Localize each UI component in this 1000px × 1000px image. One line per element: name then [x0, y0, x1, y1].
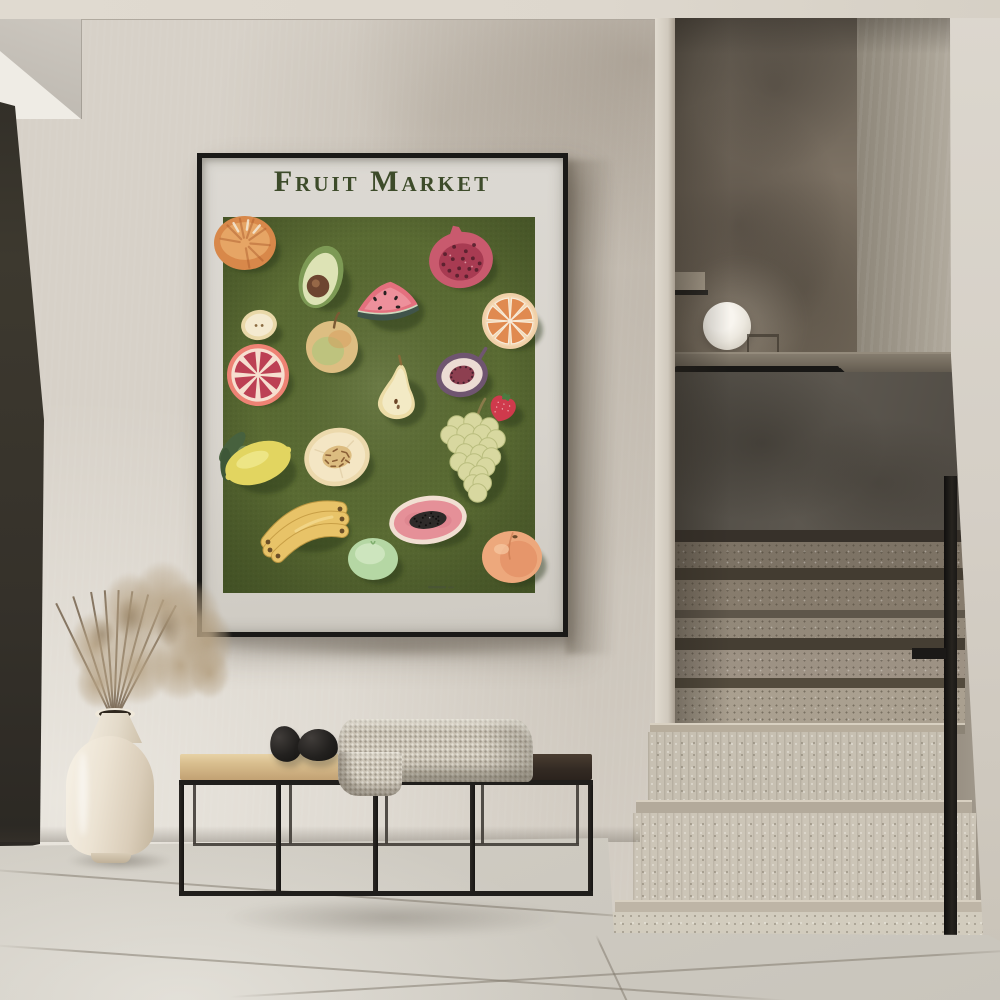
vase-foot [91, 853, 131, 863]
poster-shadow [566, 160, 614, 654]
bench-leg [276, 785, 281, 896]
pampas-plume-shade [148, 600, 188, 654]
stair-top-shadow [675, 18, 985, 54]
vase-highlight [78, 752, 88, 836]
railing-post [944, 476, 957, 942]
stair-tread [633, 813, 976, 900]
stair-tread [648, 732, 953, 800]
bench-leg [373, 785, 378, 896]
bench-leg [179, 785, 184, 896]
poster-shadow-bottom [208, 636, 594, 660]
bench-floor-shadow [168, 890, 618, 945]
poster-frame: Fruit Market [197, 153, 568, 637]
poster-artwork [205, 160, 570, 630]
pampas-plume-shade [85, 612, 119, 656]
bench-rear-leg [289, 784, 292, 844]
bench-rear-leg [481, 784, 484, 844]
bench-rear-leg [193, 784, 196, 844]
bench-rear-rail [193, 843, 579, 846]
poster-title: Fruit Market [197, 165, 568, 199]
stair-opening-jamb [655, 18, 675, 758]
bench-leg [470, 785, 475, 896]
stair-tread [611, 912, 989, 936]
bench-leg [588, 785, 593, 896]
bench-rear-leg [576, 784, 579, 844]
pampas-plume [182, 638, 237, 708]
ceiling [0, 0, 1000, 20]
railing-bracket [912, 648, 946, 659]
floor-seam [0, 944, 788, 1000]
bench-frame-bottom [179, 891, 593, 896]
knit-blanket-drape [338, 752, 402, 796]
interior-scene: Fruit Market [0, 0, 1000, 1000]
